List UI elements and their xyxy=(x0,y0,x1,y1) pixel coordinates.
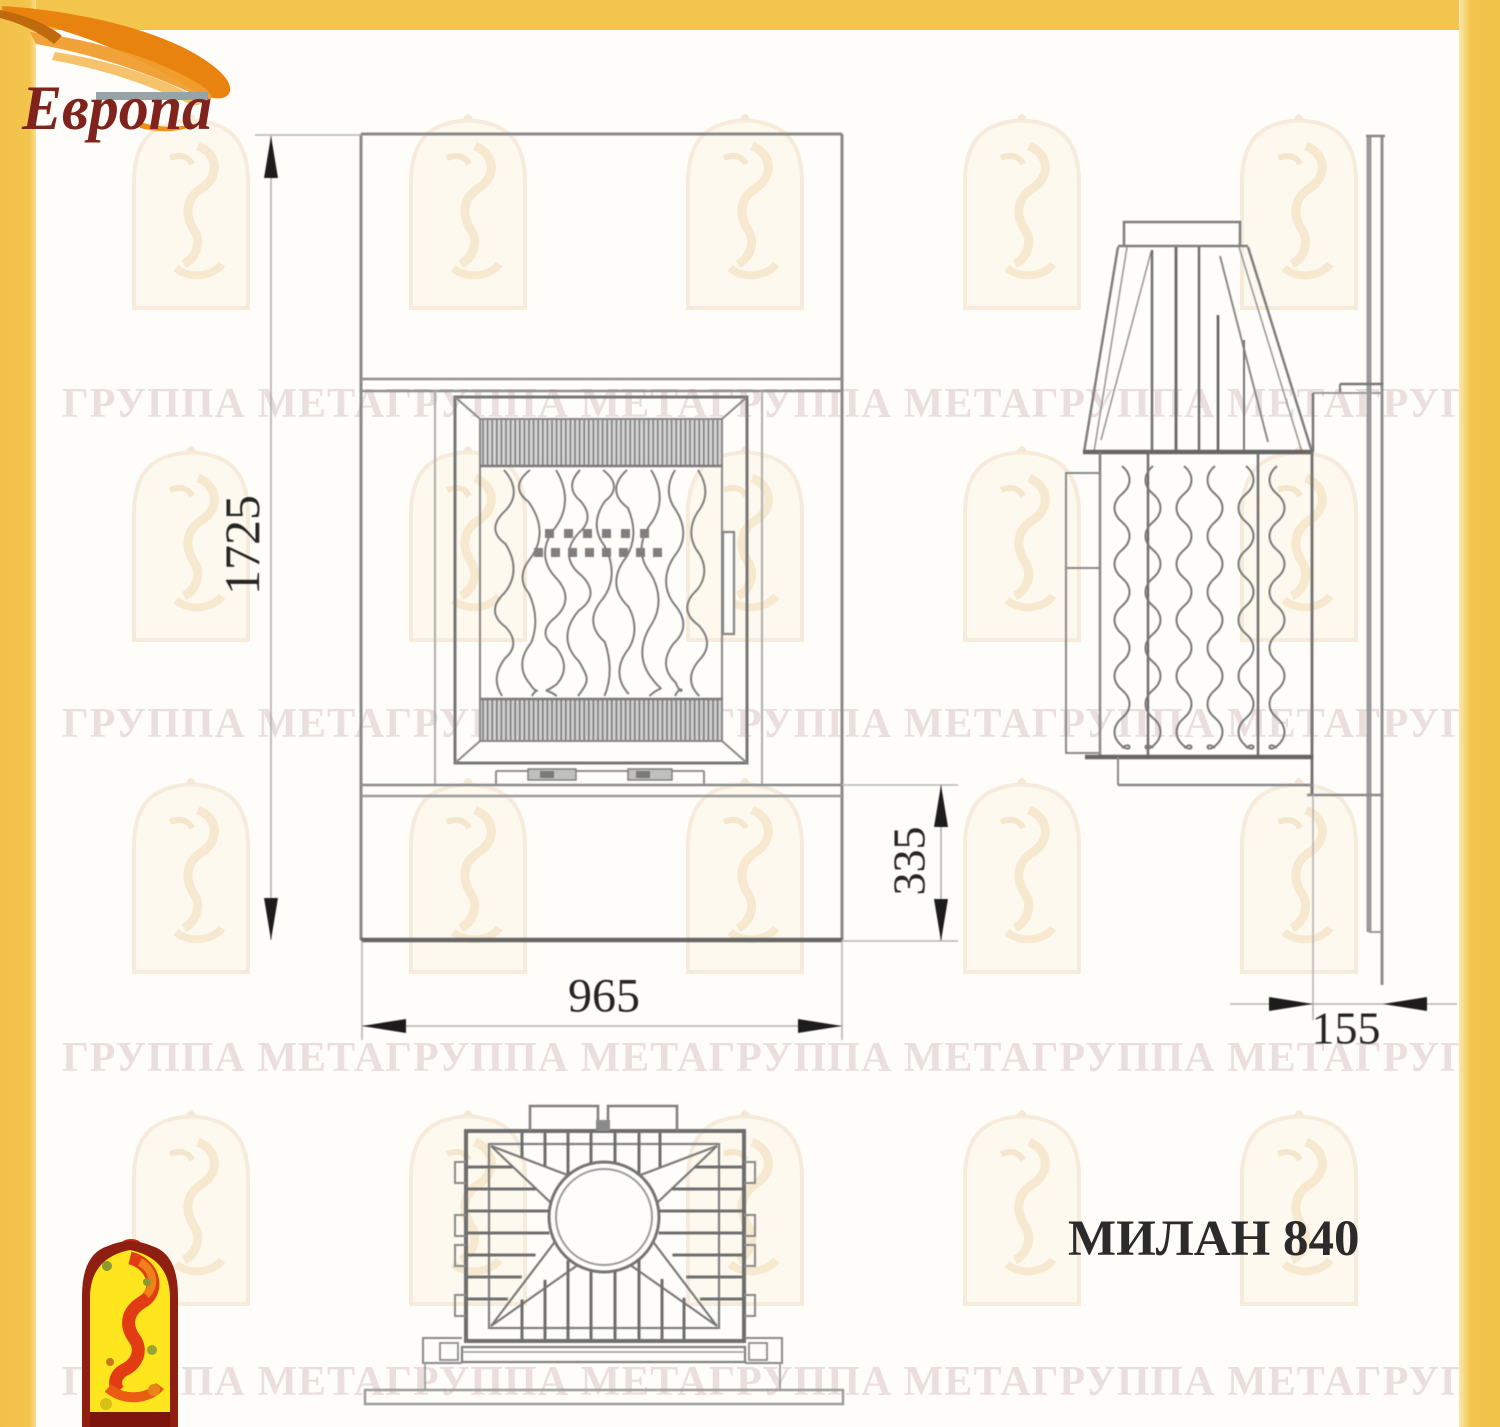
svg-text:155: 155 xyxy=(1312,1003,1381,1054)
svg-text:1725: 1725 xyxy=(214,495,270,595)
svg-text:335: 335 xyxy=(884,827,935,896)
svg-text:965: 965 xyxy=(568,970,640,1023)
svg-text:Европа: Европа xyxy=(21,72,212,143)
